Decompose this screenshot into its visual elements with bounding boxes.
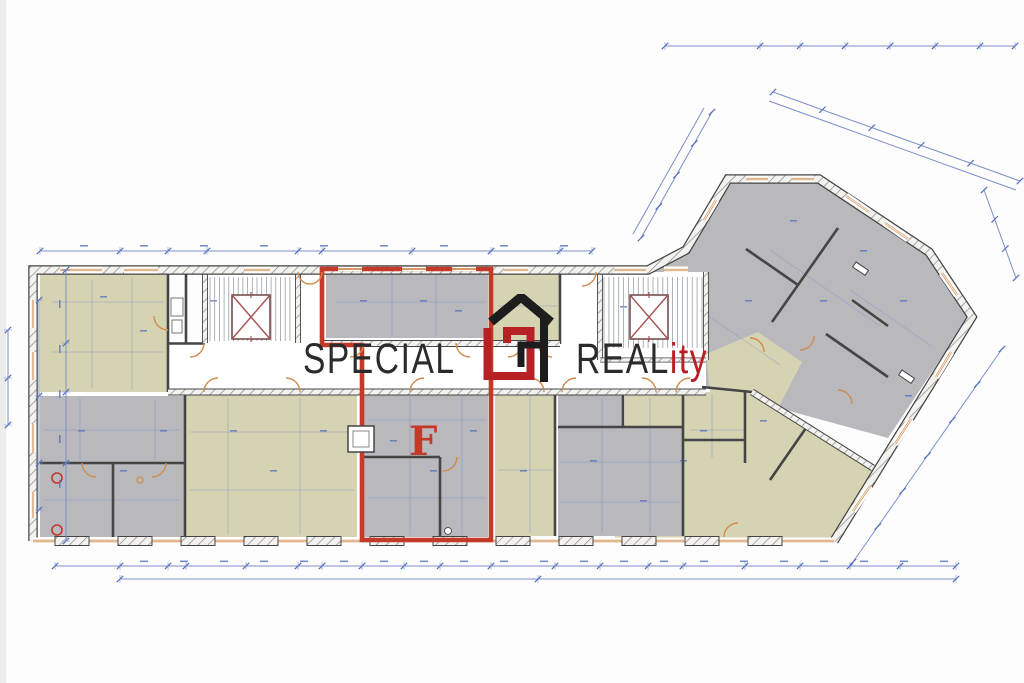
floor-plan-drawing <box>0 0 1024 683</box>
floor-plan-page: SPECIAL REALity F <box>0 0 1024 683</box>
unit-f-label: F <box>409 422 437 462</box>
